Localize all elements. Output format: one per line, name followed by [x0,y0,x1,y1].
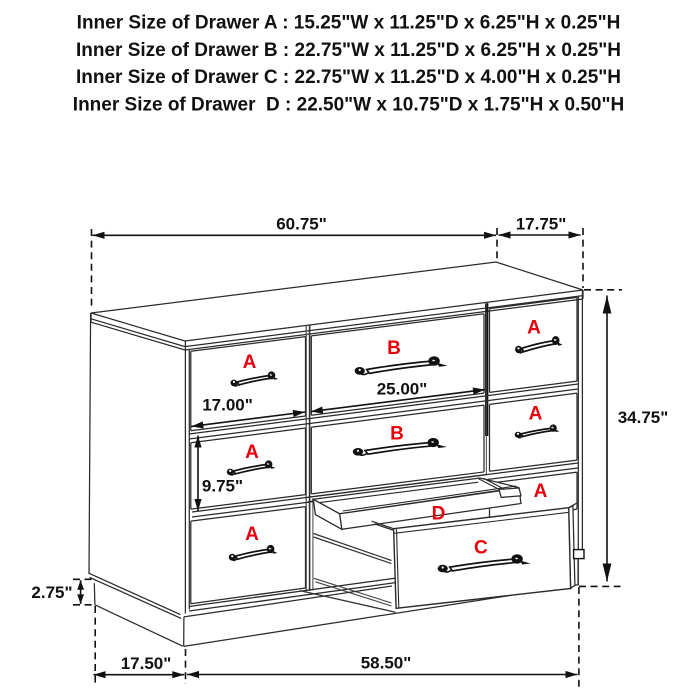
svg-text:C: C [474,538,488,559]
svg-text:34.75": 34.75" [618,408,669,427]
svg-text:A: A [243,352,257,373]
svg-text:A: A [534,481,548,502]
svg-text:B: B [390,423,404,444]
svg-text:25.00": 25.00" [377,380,428,399]
svg-text:9.75": 9.75" [202,477,243,496]
svg-text:Inner Size of Drawer A : 15.25: Inner Size of Drawer A : 15.25"W x 11.25… [77,13,621,34]
svg-text:Inner Size of Drawer B : 22.75: Inner Size of Drawer B : 22.75"W x 11.25… [76,40,621,61]
svg-text:B: B [387,338,401,359]
svg-text:A: A [245,524,259,545]
svg-text:Inner Size of Drawer C : 22.75: Inner Size of Drawer C : 22.75"W x 11.25… [76,67,621,88]
svg-text:60.75": 60.75" [276,215,327,234]
svg-text:Inner Size of Drawer D : 22.5: Inner Size of Drawer D : 22.50"W x 10.75… [73,94,624,115]
svg-text:58.50": 58.50" [361,653,412,672]
svg-text:A: A [527,318,541,339]
svg-text:A: A [529,404,543,425]
svg-text:17.50": 17.50" [121,654,172,673]
svg-text:2.75": 2.75" [31,583,72,602]
svg-text:D: D [432,503,446,524]
svg-text:A: A [245,442,259,463]
svg-text:17.00": 17.00" [202,396,253,415]
svg-text:17.75": 17.75" [516,215,567,234]
